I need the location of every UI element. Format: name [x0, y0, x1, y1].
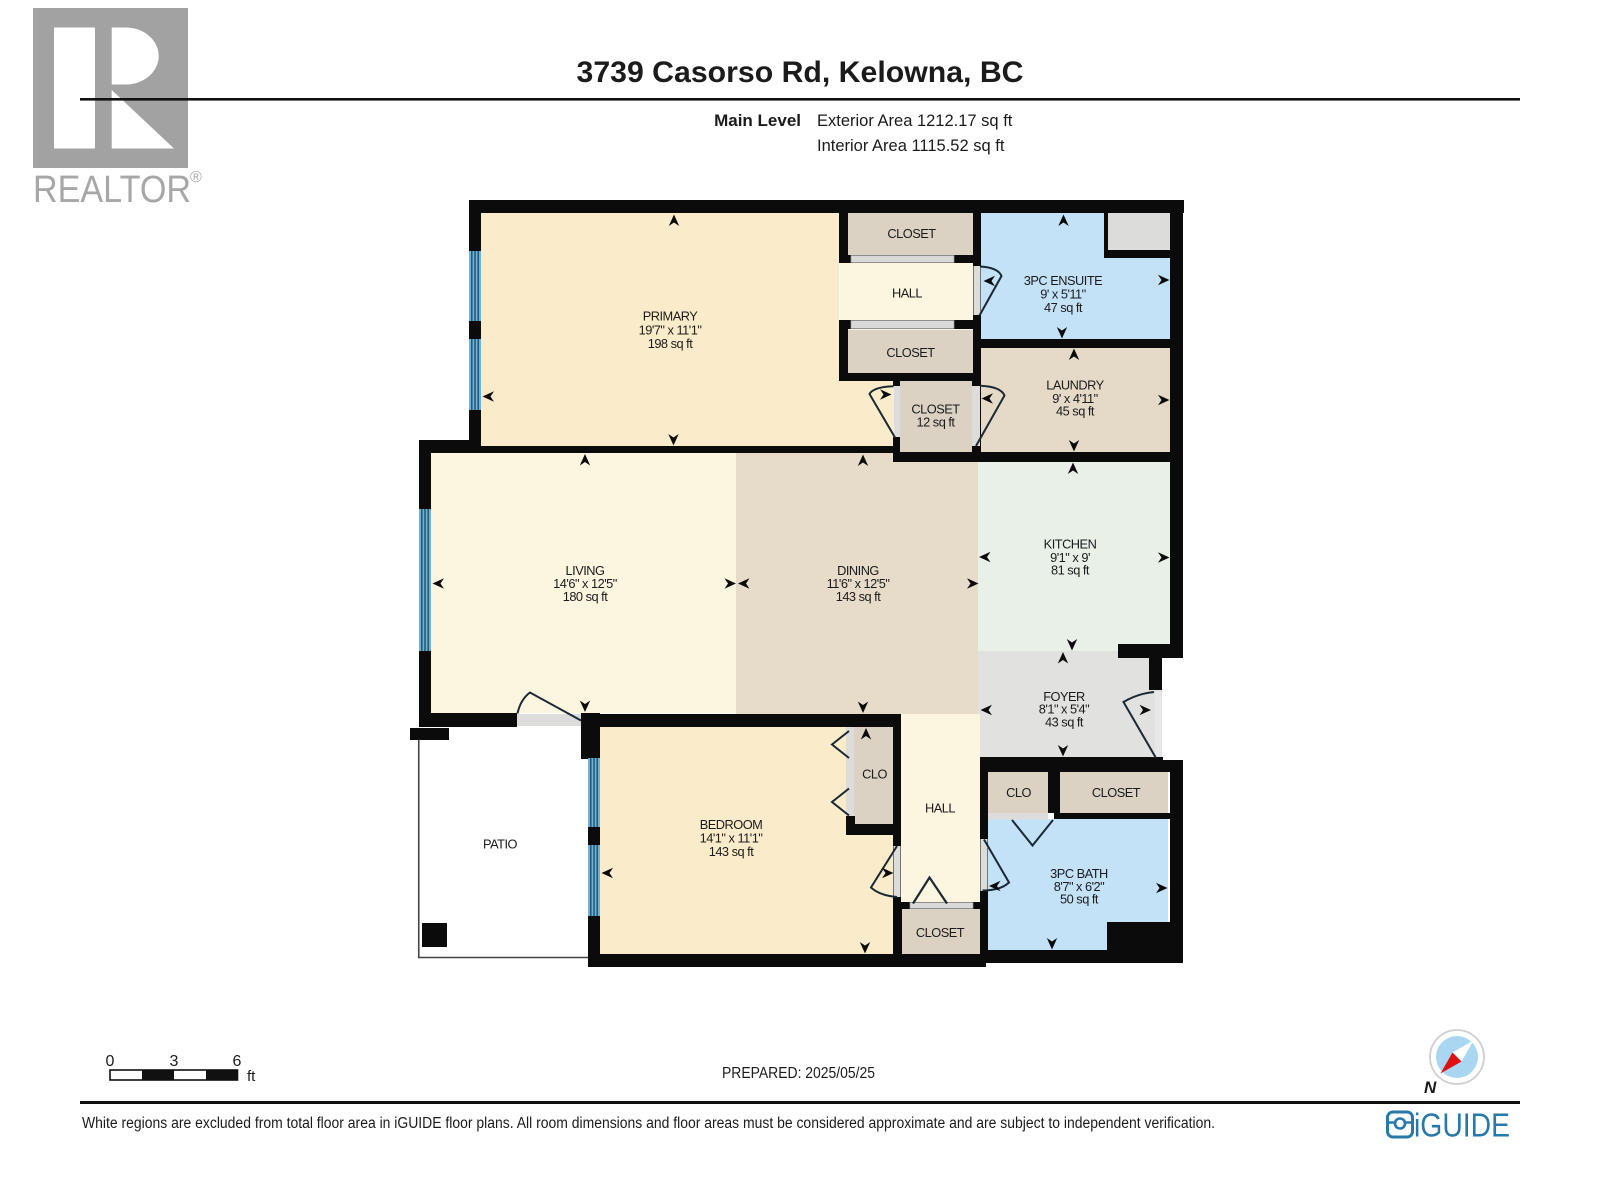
svg-text:REALTOR: REALTOR	[33, 169, 191, 211]
svg-text:143 sq ft: 143 sq ft	[709, 844, 755, 859]
svg-text:6: 6	[233, 1053, 242, 1070]
svg-text:®: ®	[190, 169, 202, 186]
svg-text:180 sq ft: 180 sq ft	[563, 589, 609, 604]
svg-text:143 sq ft: 143 sq ft	[836, 589, 882, 604]
svg-text:43 sq ft: 43 sq ft	[1045, 715, 1084, 730]
svg-text:CLOSET: CLOSET	[887, 226, 936, 241]
svg-text:3739 Casorso Rd, Kelowna, BC: 3739 Casorso Rd, Kelowna, BC	[577, 56, 1024, 89]
svg-text:ft: ft	[247, 1068, 256, 1085]
svg-text:CLOSET: CLOSET	[886, 345, 935, 360]
svg-text:81 sq ft: 81 sq ft	[1051, 563, 1090, 578]
svg-text:3: 3	[170, 1053, 179, 1070]
svg-text:iGUIDE: iGUIDE	[1414, 1107, 1510, 1144]
svg-text:50 sq ft: 50 sq ft	[1060, 892, 1099, 907]
svg-text:12 sq ft: 12 sq ft	[917, 415, 956, 430]
svg-text:47 sq ft: 47 sq ft	[1044, 300, 1083, 315]
svg-text:PRIMARY: PRIMARY	[643, 309, 699, 324]
svg-text:HALL: HALL	[892, 286, 922, 301]
svg-text:HALL: HALL	[925, 801, 955, 816]
svg-text:Exterior Area 1212.17 sq ft: Exterior Area 1212.17 sq ft	[817, 112, 1013, 130]
svg-text:CLO: CLO	[1006, 785, 1031, 800]
svg-text:CLO: CLO	[862, 767, 887, 782]
svg-text:CLOSET: CLOSET	[1092, 785, 1141, 800]
svg-text:Interior Area 1115.52 sq ft: Interior Area 1115.52 sq ft	[817, 137, 1005, 155]
svg-text:45 sq ft: 45 sq ft	[1056, 404, 1095, 419]
svg-text:PREPARED: 2025/05/25: PREPARED: 2025/05/25	[722, 1065, 875, 1082]
svg-text:PATIO: PATIO	[483, 837, 518, 852]
svg-text:Main Level: Main Level	[714, 111, 801, 130]
svg-text:198 sq ft: 198 sq ft	[648, 336, 694, 351]
svg-text:N: N	[1424, 1078, 1437, 1097]
svg-text:0: 0	[106, 1053, 115, 1070]
svg-text:CLOSET: CLOSET	[916, 925, 965, 940]
svg-text:White regions are excluded fro: White regions are excluded from total fl…	[82, 1115, 1215, 1132]
